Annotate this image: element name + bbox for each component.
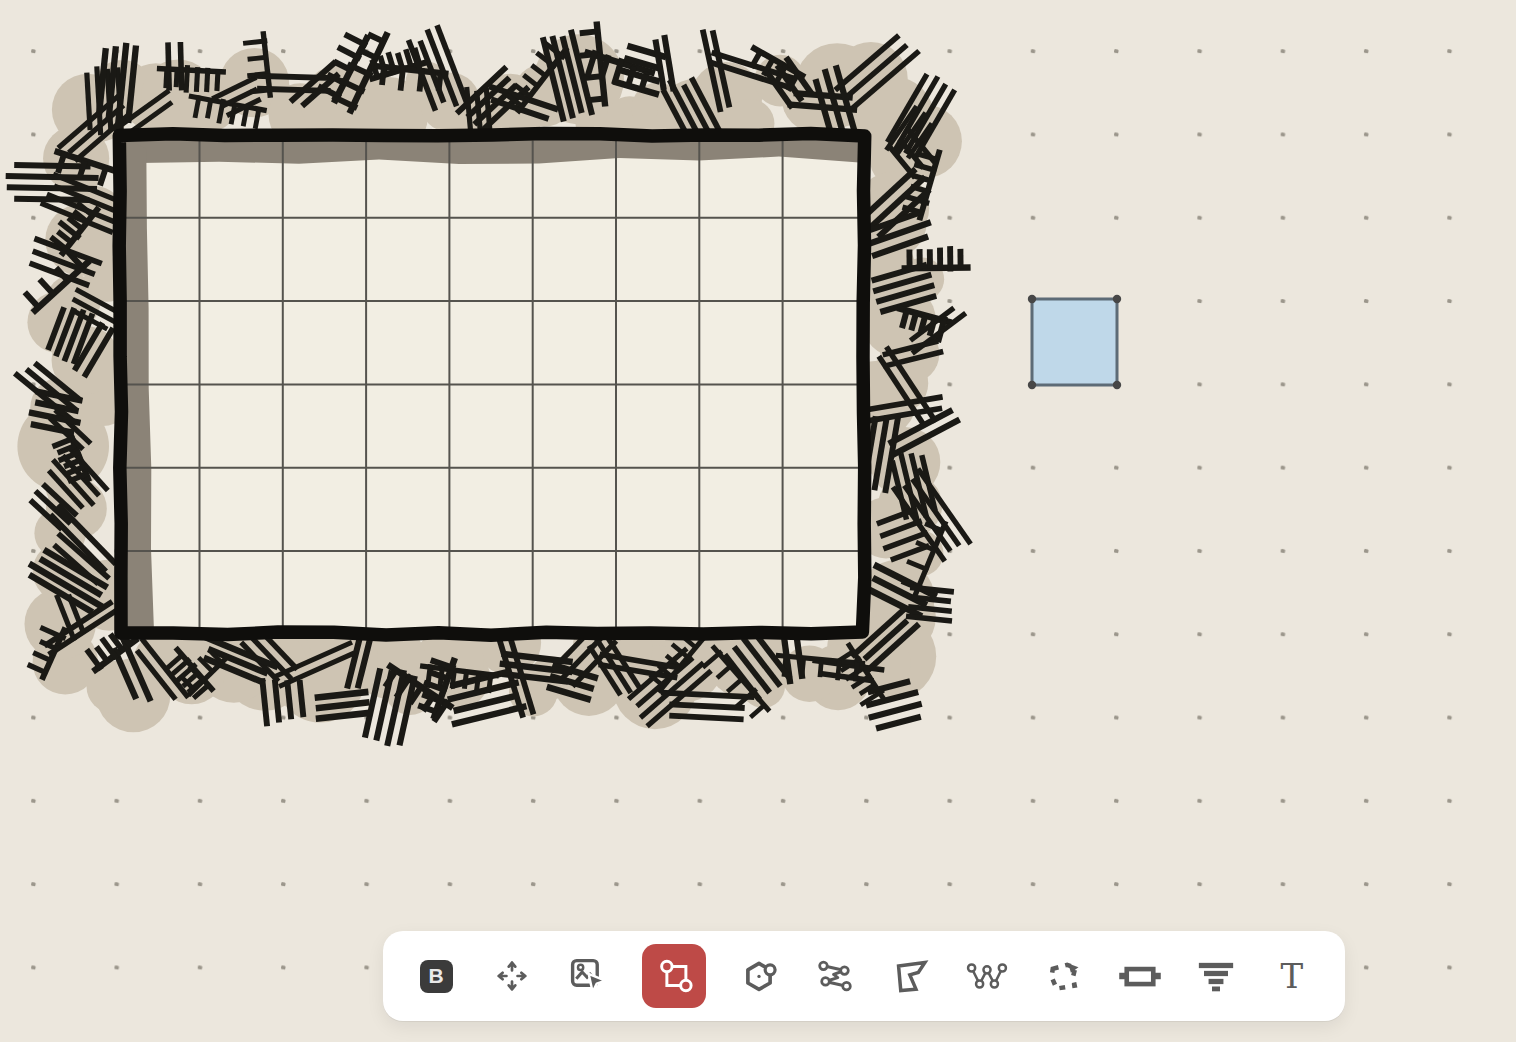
curve-nodes-icon: [816, 957, 854, 995]
door-icon: [1118, 961, 1162, 991]
curve-path-tool-button[interactable]: [812, 944, 858, 1008]
polyline-nodes-tool-button[interactable]: [964, 944, 1010, 1008]
image-cursor-icon: [568, 956, 608, 996]
transform-select-icon: [655, 958, 693, 994]
hex-shape-tool-button[interactable]: [736, 944, 782, 1008]
polyline-w-icon: [964, 960, 1010, 992]
hexagon-node-icon: [740, 957, 778, 995]
funnel-lines-icon: [1196, 960, 1236, 992]
image-select-tool-button[interactable]: [565, 944, 611, 1008]
marker-corner-node: [1113, 295, 1121, 303]
room: [119, 134, 865, 636]
text-tool-button[interactable]: T: [1269, 944, 1315, 1008]
polygon-tool-button[interactable]: [888, 944, 934, 1008]
funnel-tool-button[interactable]: [1193, 944, 1239, 1008]
toolbar: B: [383, 931, 1345, 1021]
marker-corner-node: [1028, 295, 1036, 303]
marker-rectangle[interactable]: [1028, 295, 1121, 389]
map-canvas[interactable]: [0, 0, 1516, 1042]
marker-corner-node: [1028, 381, 1036, 389]
text-tool-glyph: T: [1281, 959, 1304, 993]
brand-button[interactable]: B: [413, 944, 459, 1008]
door-tool-button[interactable]: [1117, 944, 1163, 1008]
dashed-marquee-icon: [1044, 957, 1082, 995]
move-tool-button[interactable]: [489, 944, 535, 1008]
brand-logo-b: B: [420, 960, 453, 993]
freehand-select-tool-button[interactable]: [1040, 944, 1086, 1008]
marker-corner-node: [1113, 381, 1121, 389]
move-icon: [495, 959, 529, 993]
transform-select-tool-button[interactable]: [642, 944, 706, 1008]
polygon-icon: [891, 957, 931, 995]
